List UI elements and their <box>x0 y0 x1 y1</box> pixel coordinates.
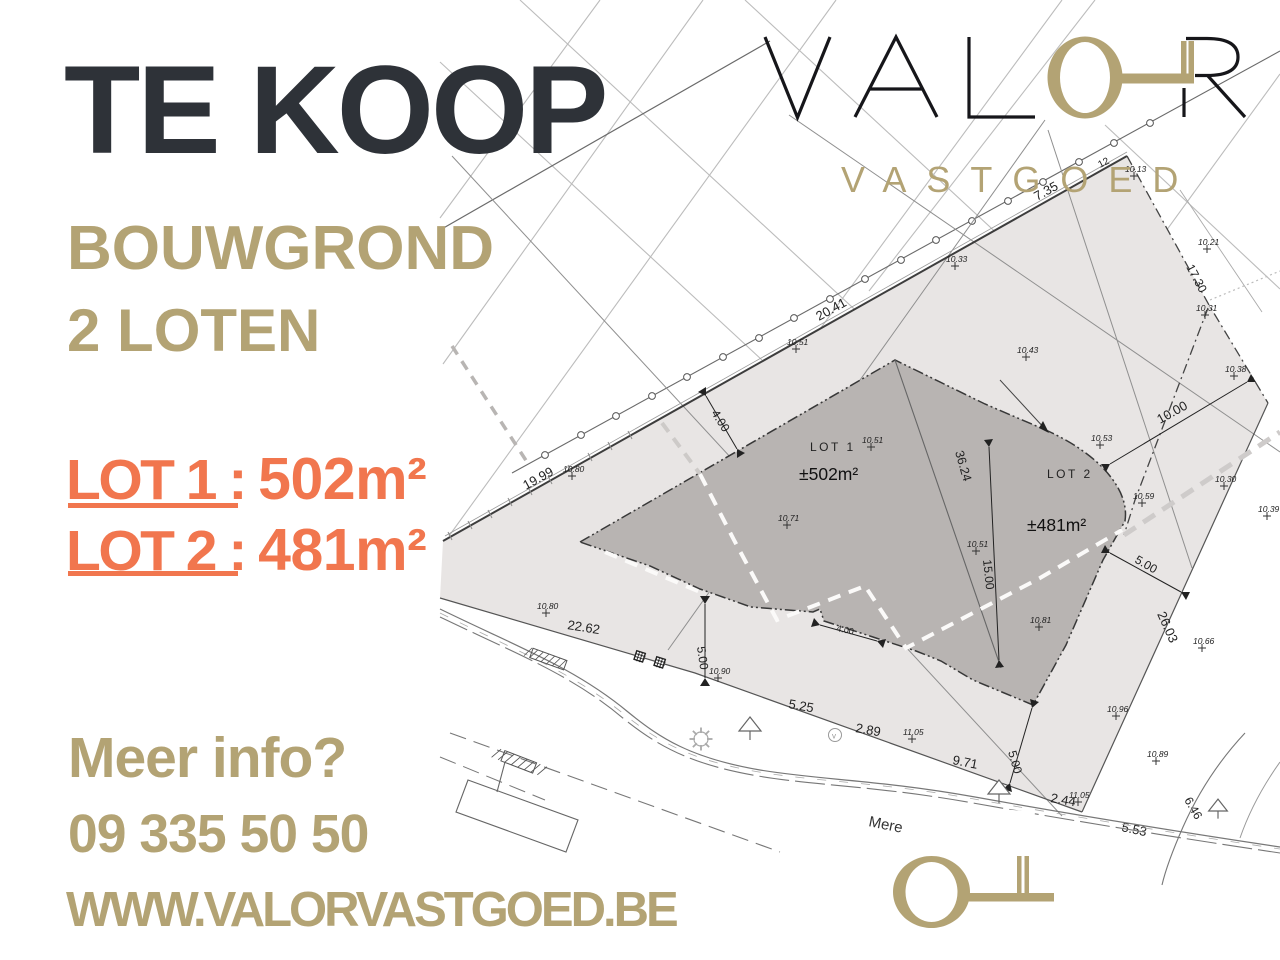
svg-text:LOT 2: LOT 2 <box>1047 467 1093 481</box>
svg-text:10.89: 10.89 <box>1147 749 1169 759</box>
svg-text:10.43: 10.43 <box>1017 345 1039 355</box>
svg-text:10.59: 10.59 <box>1133 491 1155 501</box>
svg-text:11.05: 11.05 <box>903 727 924 737</box>
svg-text:10.80: 10.80 <box>563 464 585 474</box>
svg-text:Mere: Mere <box>867 813 904 836</box>
svg-text:10.21: 10.21 <box>1198 237 1220 247</box>
svg-text:10.66: 10.66 <box>1193 636 1215 646</box>
svg-text:10.71: 10.71 <box>778 513 800 523</box>
svg-text:10.31: 10.31 <box>1196 303 1218 313</box>
svg-text:6.46: 6.46 <box>1181 795 1205 823</box>
svg-text:v: v <box>832 732 836 741</box>
svg-text:2.89: 2.89 <box>854 720 882 739</box>
svg-text:10.96: 10.96 <box>1107 704 1129 714</box>
svg-text:5.25: 5.25 <box>787 696 815 715</box>
svg-text:10.38: 10.38 <box>1225 364 1247 374</box>
svg-text:LOT 1: LOT 1 <box>810 440 856 454</box>
svg-text:10.90: 10.90 <box>709 666 731 676</box>
svg-text:10.30: 10.30 <box>1215 474 1237 484</box>
svg-text:10.51: 10.51 <box>967 539 989 549</box>
svg-text:10.53: 10.53 <box>1091 433 1113 443</box>
svg-text:±502m²: ±502m² <box>799 464 858 484</box>
svg-text:10.51: 10.51 <box>862 435 884 445</box>
svg-text:10.80: 10.80 <box>537 601 559 611</box>
svg-text:VASTGOED: VASTGOED <box>841 159 1198 200</box>
svg-text:10.39: 10.39 <box>1258 504 1280 514</box>
svg-text:±481m²: ±481m² <box>1027 515 1086 535</box>
svg-text:10.33: 10.33 <box>946 254 968 264</box>
svg-text:10.81: 10.81 <box>1030 615 1052 625</box>
svg-text:10.51: 10.51 <box>787 337 809 347</box>
svg-text:11.05: 11.05 <box>1069 790 1090 800</box>
